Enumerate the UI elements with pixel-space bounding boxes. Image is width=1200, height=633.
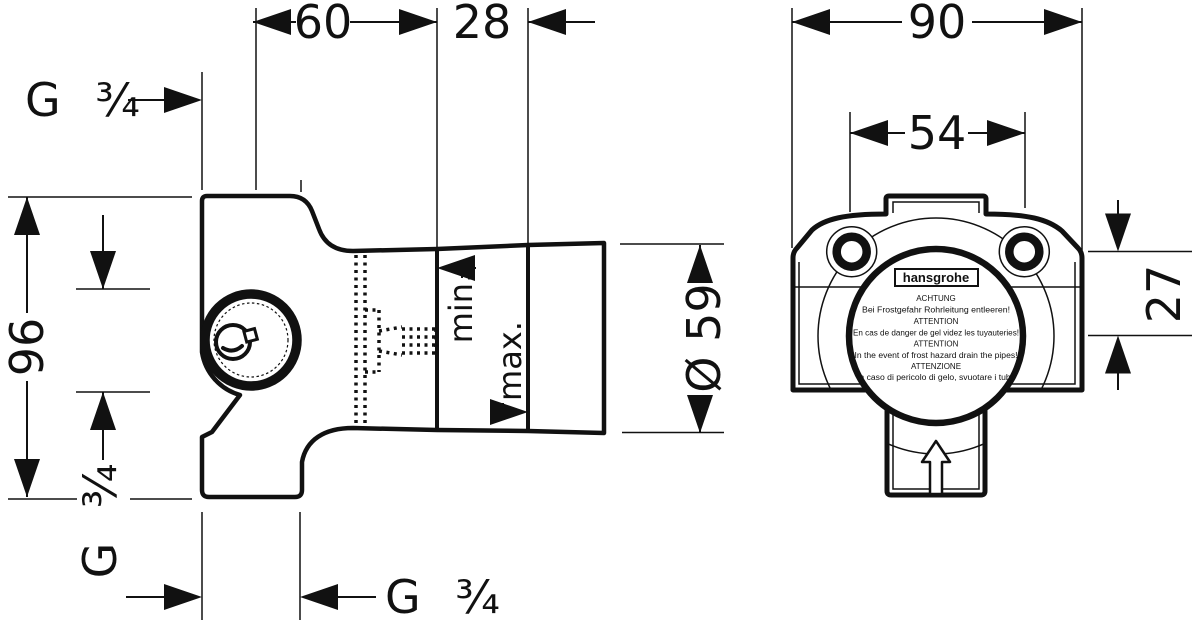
dimension-60-28: 60 28 [253, 0, 595, 192]
dim-diameter-59: Ø 59 [677, 283, 731, 392]
dim-27: 27 [1137, 265, 1191, 324]
thread-rear-annotation: G ¾ [25, 72, 202, 190]
dim-54: 54 [908, 106, 967, 160]
side-view: min. max. 60 28 G ¾ [0, 0, 731, 624]
warning-line-5: In the event of frost hazard drain the p… [855, 351, 1018, 360]
valve-technical-drawing: min. max. 60 28 G ¾ [0, 0, 1200, 633]
max-label: max. [491, 321, 529, 401]
brand-logo: hansgrohe [903, 270, 969, 285]
thread-rear-label: G ¾ [25, 73, 150, 127]
dim-96: 96 [0, 318, 54, 377]
warning-line-6: ATTENZIONE [911, 362, 961, 371]
min-label: min. [442, 273, 480, 344]
thread-bottom-annotation: G ¾ [126, 512, 510, 624]
dimension-27: 27 [1088, 200, 1192, 390]
warning-line-3: En cas de danger de gel videz les tuyaut… [853, 329, 1019, 338]
front-view: 90 54 [792, 0, 1192, 495]
warning-line-0: ACHTUNG [916, 294, 956, 303]
valve-spindle [205, 294, 297, 386]
technical-drawing-page: min. max. 60 28 G ¾ [0, 0, 1200, 633]
warning-line-2: ATTENTION [914, 317, 959, 326]
thread-side-annotation: G ¾ [73, 215, 150, 578]
warning-line-4: ATTENTION [914, 340, 959, 349]
warning-line-1: Bei Frostgefahr Rohrleitung entleeren! [862, 306, 1010, 315]
dim-28: 28 [453, 0, 512, 49]
thread-side-label: G ¾ [73, 454, 127, 579]
port-left [827, 227, 877, 277]
warning-line-7: In caso di pericolo di gelo, svuotare i … [857, 373, 1015, 382]
thread-bottom-label: G ¾ [385, 570, 510, 624]
dim-60: 60 [294, 0, 353, 49]
dim-90: 90 [908, 0, 967, 49]
dimension-diameter-59: Ø 59 [620, 244, 731, 433]
min-depth-annotation: min. [437, 255, 480, 343]
port-right [999, 227, 1049, 277]
